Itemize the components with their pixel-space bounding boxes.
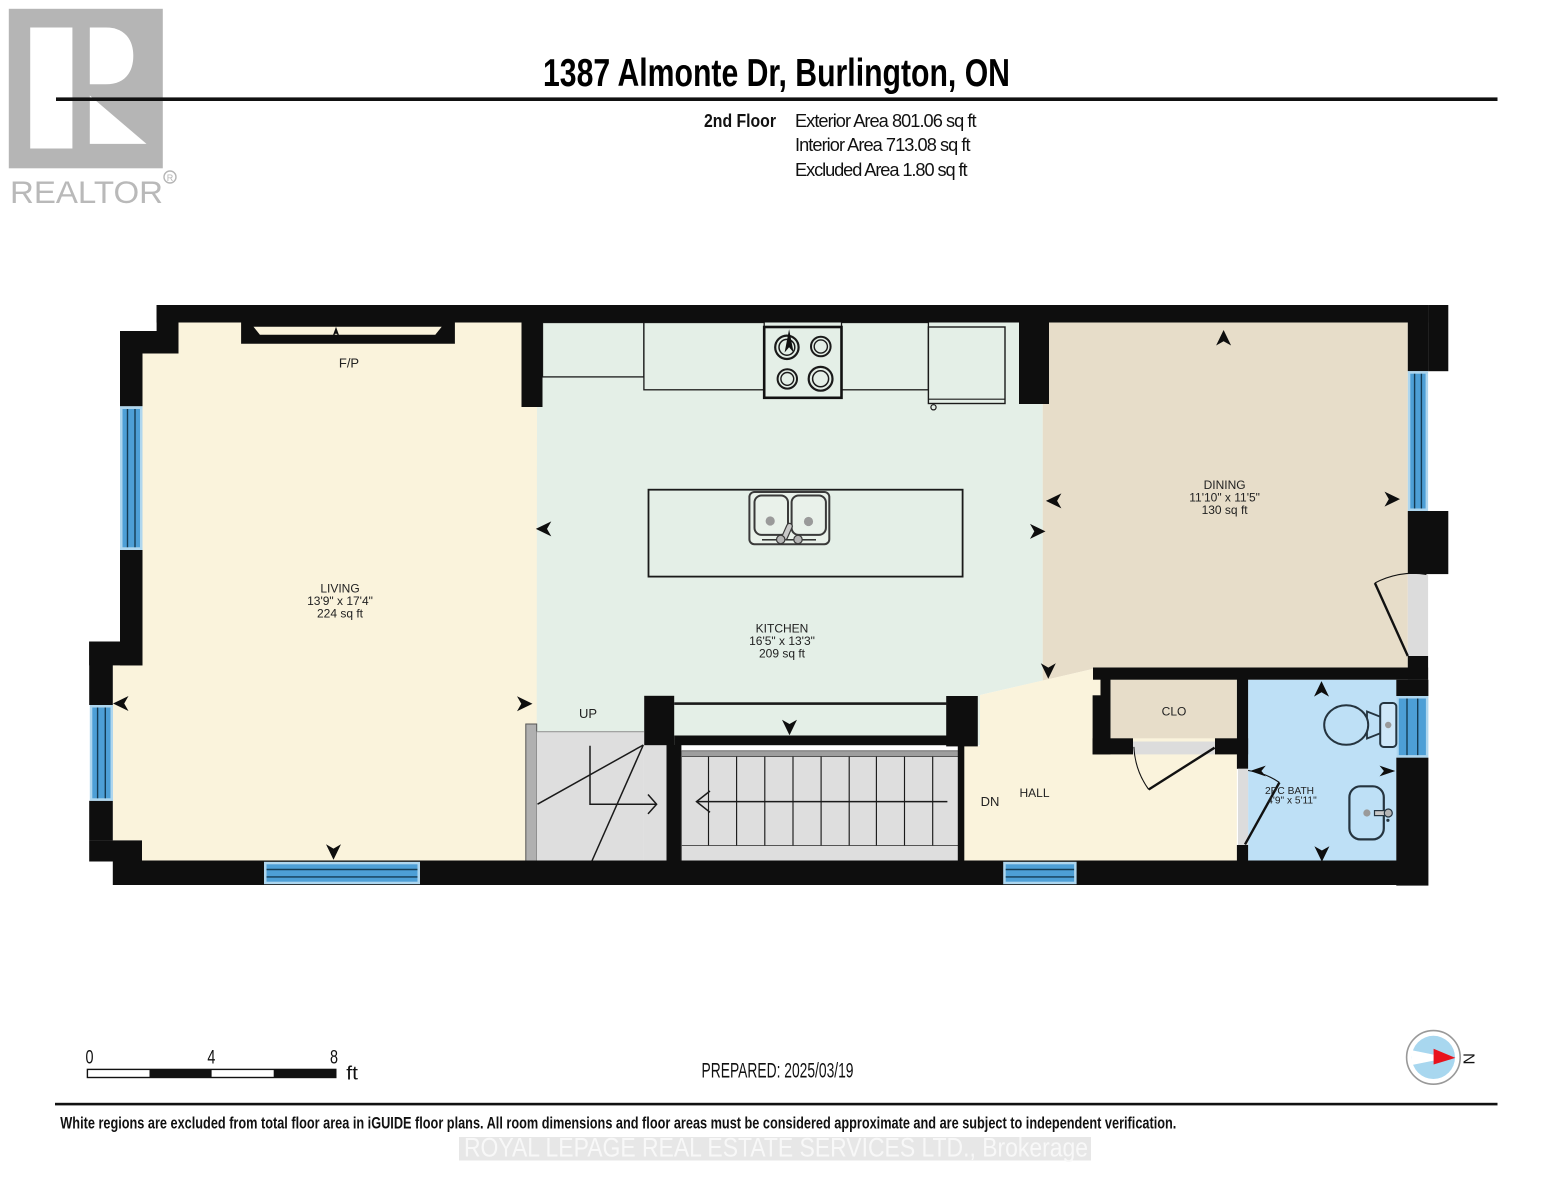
svg-text:224 sq ft: 224 sq ft bbox=[317, 607, 364, 621]
svg-text:REALTOR: REALTOR bbox=[10, 174, 163, 210]
svg-text:White regions are excluded fro: White regions are excluded from total fl… bbox=[60, 1113, 1176, 1132]
svg-text:F/P: F/P bbox=[339, 356, 359, 371]
svg-text:UP: UP bbox=[579, 706, 597, 721]
svg-text:CLO: CLO bbox=[1162, 705, 1187, 719]
svg-text:ROYAL LEPAGE REAL ESTATE SERVI: ROYAL LEPAGE REAL ESTATE SERVICES LTD., … bbox=[464, 1133, 1088, 1163]
svg-text:PREPARED: 2025/03/19: PREPARED: 2025/03/19 bbox=[702, 1059, 854, 1082]
svg-text:8: 8 bbox=[330, 1047, 338, 1069]
svg-text:4: 4 bbox=[207, 1047, 215, 1069]
svg-text:209 sq ft: 209 sq ft bbox=[759, 647, 806, 661]
svg-text:ft: ft bbox=[346, 1064, 358, 1085]
svg-text:2nd Floor: 2nd Floor bbox=[704, 111, 776, 131]
svg-text:R: R bbox=[167, 173, 174, 183]
svg-text:Interior Area 713.08 sq ft: Interior Area 713.08 sq ft bbox=[795, 135, 971, 155]
svg-text:4'9" x 5'11": 4'9" x 5'11" bbox=[1267, 796, 1317, 807]
svg-text:N: N bbox=[1459, 1053, 1476, 1065]
svg-text:0: 0 bbox=[86, 1047, 94, 1069]
svg-text:1387 Almonte Dr, Burlington, O: 1387 Almonte Dr, Burlington, ON bbox=[543, 52, 1010, 95]
svg-text:DN: DN bbox=[981, 794, 1000, 809]
svg-text:Exterior Area 801.06 sq ft: Exterior Area 801.06 sq ft bbox=[795, 111, 977, 131]
svg-text:HALL: HALL bbox=[1019, 786, 1049, 800]
svg-text:130 sq ft: 130 sq ft bbox=[1202, 503, 1249, 517]
svg-text:Excluded Area 1.80 sq ft: Excluded Area 1.80 sq ft bbox=[795, 160, 968, 180]
